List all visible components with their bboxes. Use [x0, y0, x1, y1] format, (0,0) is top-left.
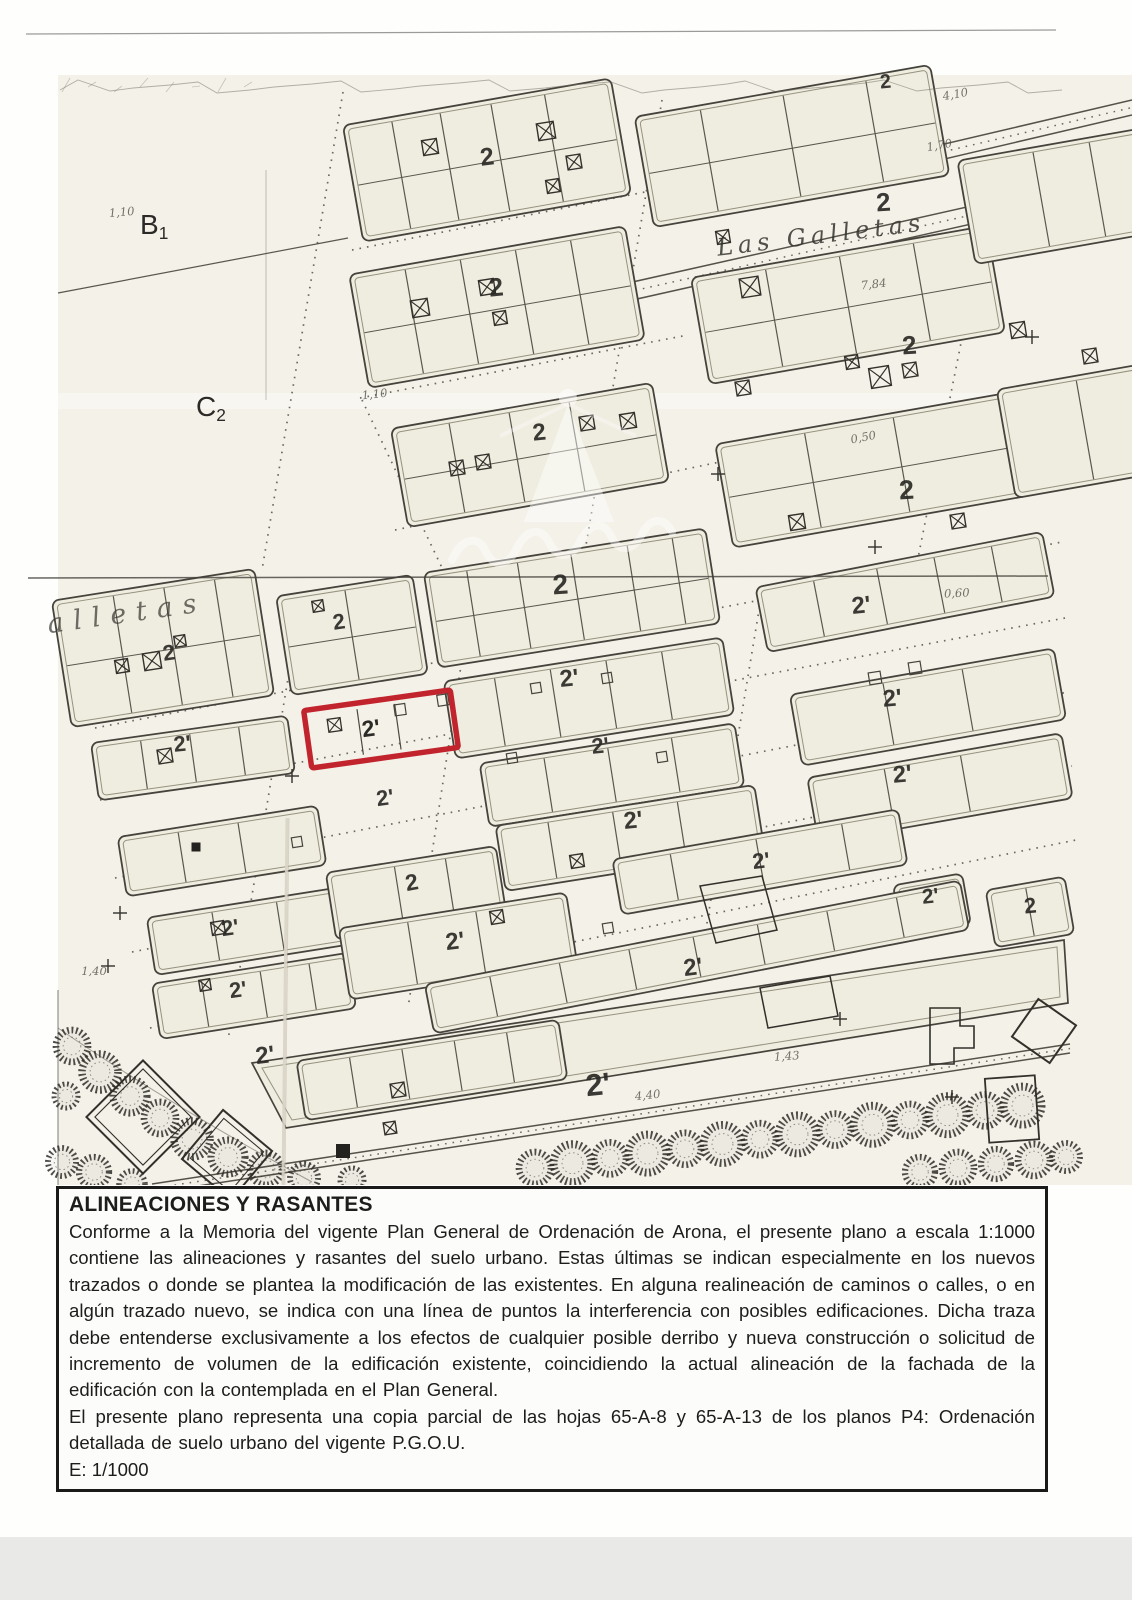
zone-label: 2' — [882, 684, 903, 713]
tree-icon — [981, 1149, 1011, 1179]
zone-label: 2' — [228, 976, 249, 1003]
urban-plan-map: 22222222222'2'2'2'2'2'2'2'2'2'22'2'2'22'… — [0, 0, 1132, 1185]
tree-icon — [144, 1102, 176, 1134]
zone-label: 2' — [558, 664, 580, 693]
tree-icon — [819, 1114, 851, 1146]
zone-label: 2' — [375, 784, 396, 811]
zone-label: 2' — [172, 730, 192, 757]
tree-icon — [174, 1121, 210, 1157]
legend-scale: E: 1/1000 — [69, 1457, 1035, 1483]
tree-icon — [48, 1148, 76, 1176]
tree-icon — [929, 1096, 967, 1134]
zone-label: 2' — [254, 1041, 276, 1070]
legend-note: El presente plano representa una copia p… — [69, 1404, 1035, 1457]
tree-icon — [54, 1084, 78, 1108]
tree-icon — [82, 1054, 118, 1090]
tree-icon — [554, 1144, 592, 1182]
zone-label: 2' — [892, 760, 913, 789]
elevation-annotation: 1,10 — [361, 386, 388, 403]
zone-label: 2' — [444, 927, 466, 956]
zone-label: 2' — [584, 1066, 612, 1103]
elevation-annotation: 1,10 — [108, 204, 135, 220]
tree-icon — [669, 1133, 701, 1165]
tree-icon — [1018, 1144, 1050, 1176]
zone-label: 2' — [921, 884, 940, 909]
tree-icon — [113, 1079, 147, 1113]
elevation-annotation: 1,43 — [773, 1048, 800, 1064]
zone-label: 2' — [622, 806, 644, 835]
zone-label: 2 — [898, 475, 915, 506]
tree-icon — [1004, 1087, 1042, 1125]
legend-paragraph: Conforme a la Memoria del vigente Plan G… — [69, 1219, 1035, 1404]
zone-label: 2 — [1023, 892, 1038, 918]
zone-label: 2' — [682, 953, 704, 982]
tree-icon — [250, 1153, 282, 1185]
tree-icon — [854, 1106, 892, 1144]
scanner-background-band — [0, 1537, 1132, 1600]
filled-square-mark — [192, 843, 201, 852]
elevation-annotation: 4,40 — [633, 1087, 661, 1104]
zone-label: 2 — [551, 569, 569, 601]
elevation-annotation: 7,84 — [860, 276, 887, 293]
tree-icon — [1052, 1143, 1080, 1171]
zone-label: 2 — [901, 330, 918, 361]
tree-icon — [969, 1094, 1001, 1126]
scanned-document-page: 22222222222'2'2'2'2'2'2'2'2'2'22'2'2'22'… — [0, 0, 1132, 1600]
tree-icon — [704, 1125, 742, 1163]
zone-label: 2 — [879, 71, 892, 94]
elevation-annotation: 1,40 — [81, 964, 107, 978]
legend-box: ALINEACIONES Y RASANTES Conforme a la Me… — [56, 1186, 1048, 1492]
tree-icon — [779, 1115, 817, 1153]
zone-label: 2 — [531, 418, 547, 446]
tree-icon — [629, 1135, 667, 1173]
tree-icon — [56, 1030, 88, 1062]
city-block — [276, 575, 428, 695]
tree-icon — [744, 1123, 776, 1155]
highlighted-parcel-label: 2' — [360, 714, 382, 742]
elevation-annotation: 0,60 — [944, 585, 970, 600]
filled-square-mark — [336, 1144, 350, 1158]
tree-icon — [519, 1152, 551, 1184]
tree-icon — [594, 1142, 626, 1174]
zone-label: 2' — [850, 591, 872, 620]
zone-label: 2' — [751, 847, 771, 874]
zone-label: 2' — [220, 914, 241, 941]
zone-label: 2' — [590, 732, 610, 759]
tree-icon — [942, 1152, 974, 1184]
tree-icon — [894, 1104, 926, 1136]
legend-title: ALINEACIONES Y RASANTES — [69, 1191, 1035, 1219]
tree-icon — [211, 1140, 245, 1174]
